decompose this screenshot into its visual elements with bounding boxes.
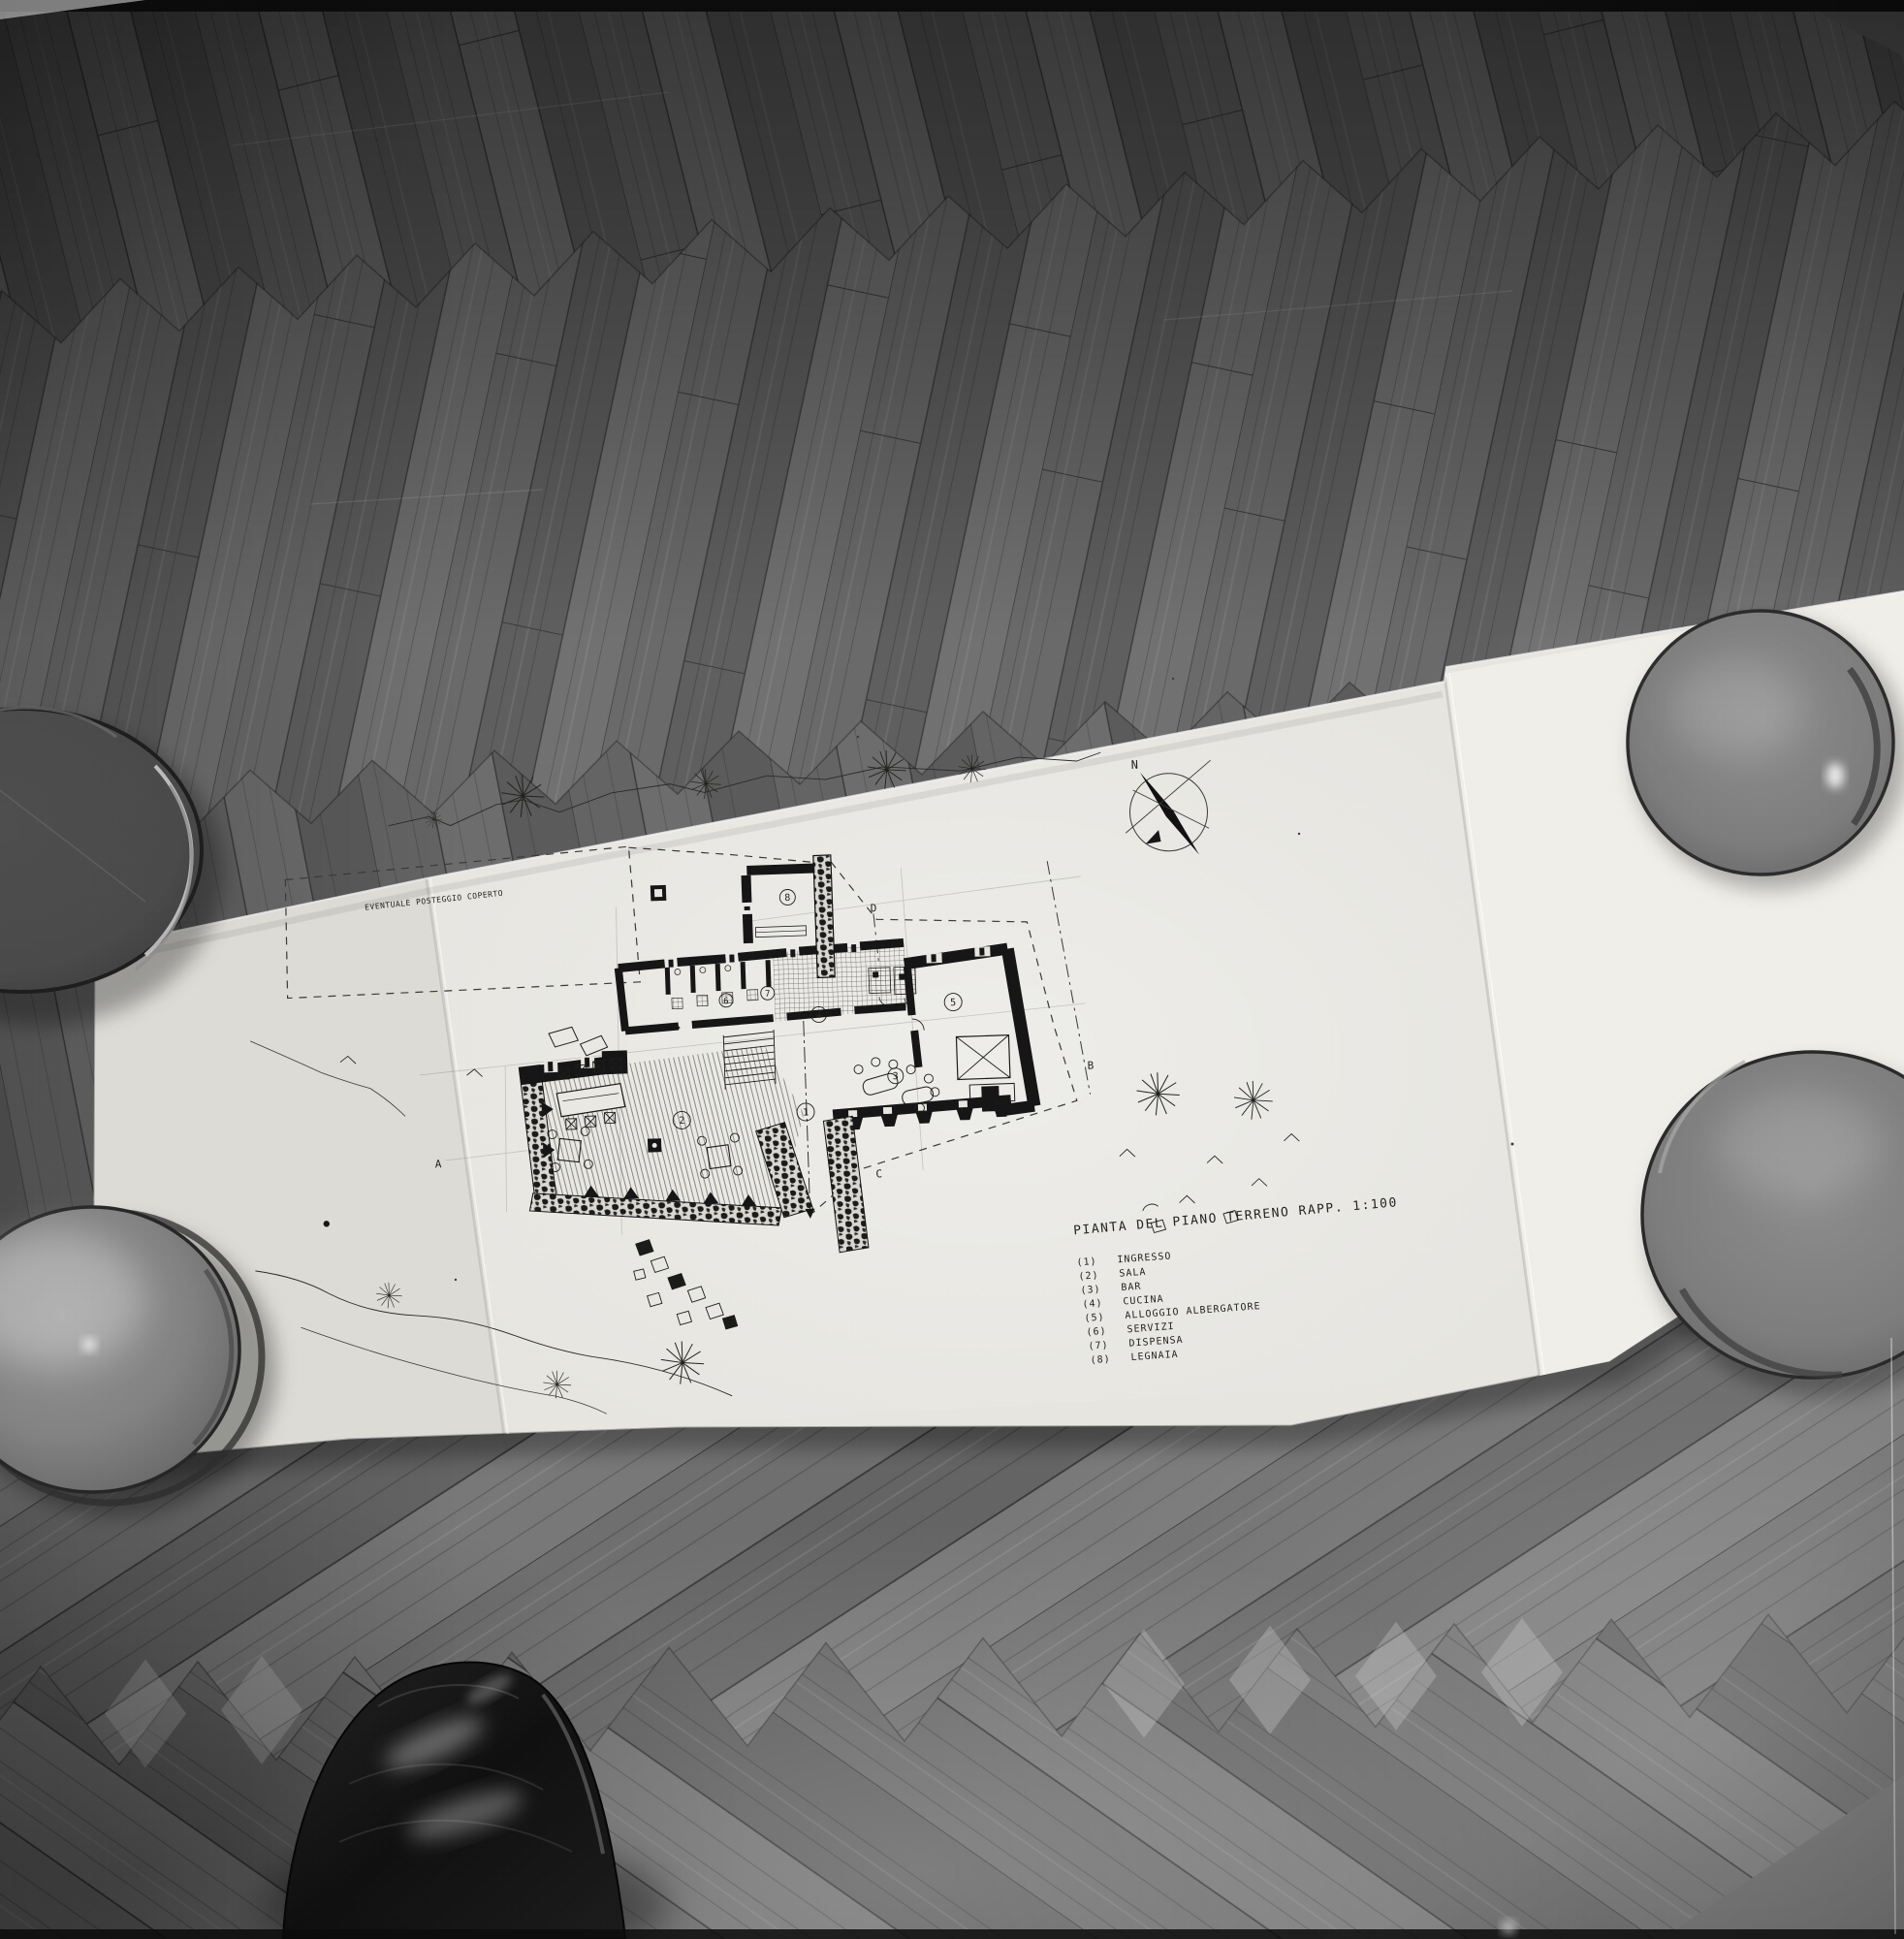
vignette	[0, 0, 1904, 1939]
photograph-floorplan-on-parquet: EVENTUALE POSTEGGIO COPERTO	[0, 0, 1904, 1939]
